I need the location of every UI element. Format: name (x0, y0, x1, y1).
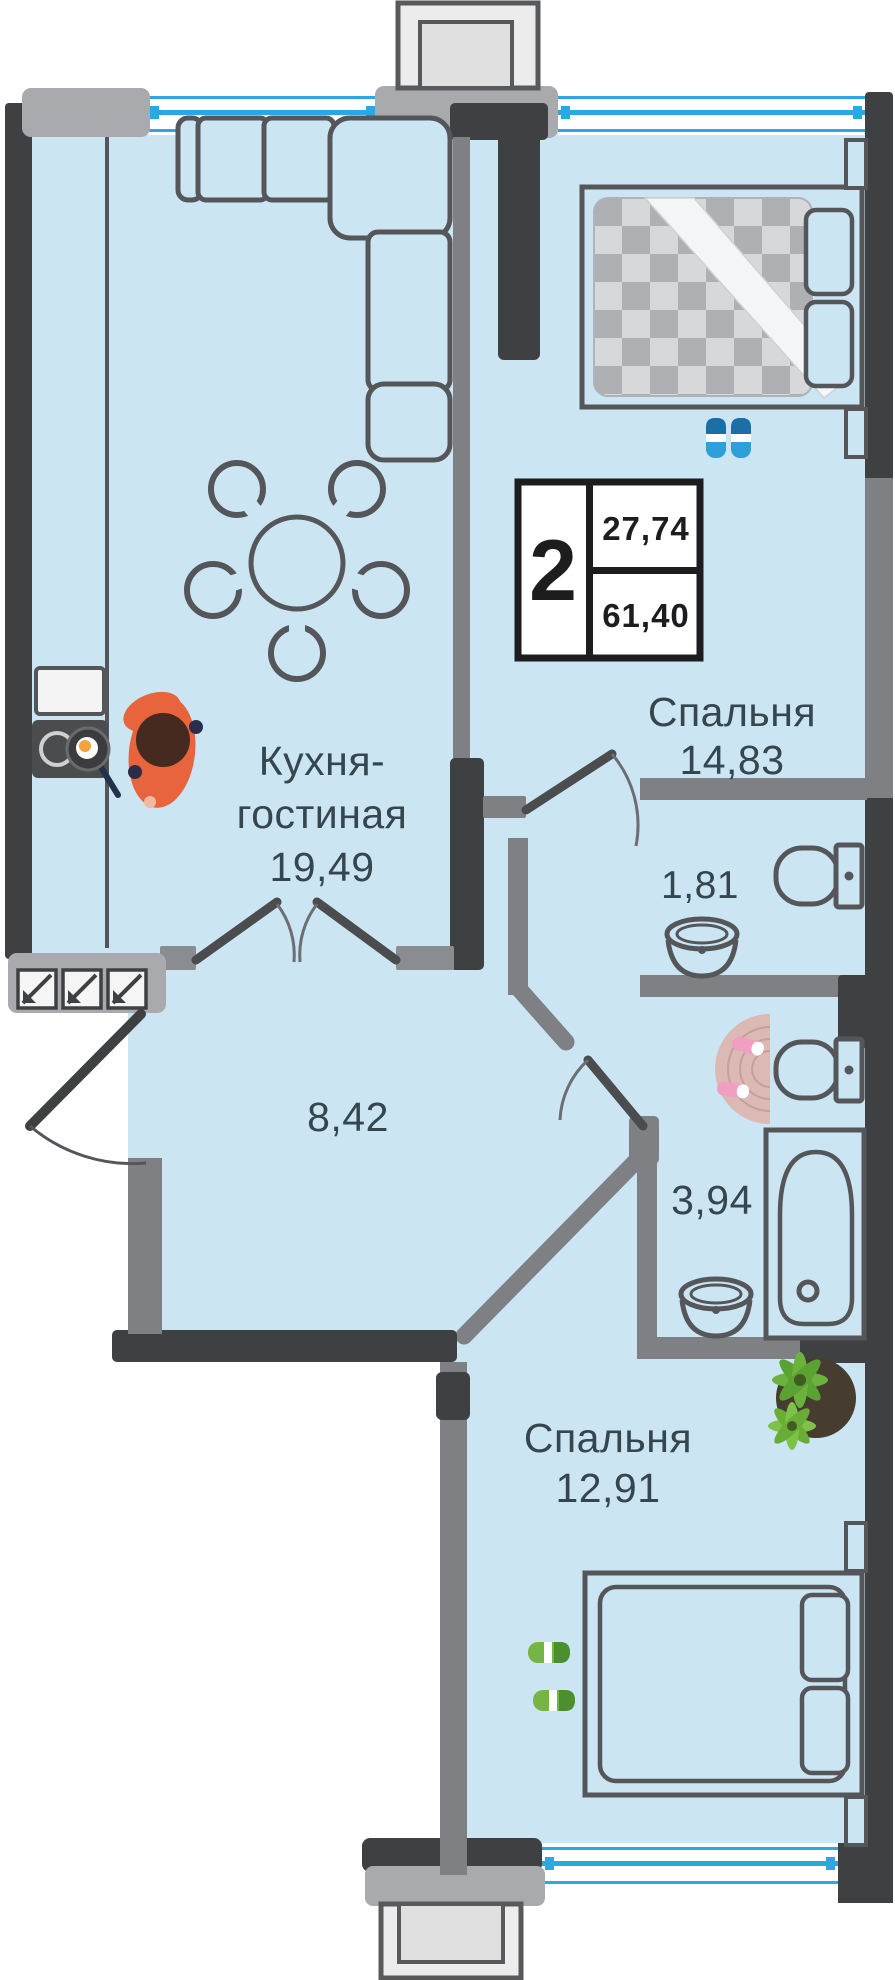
room-area-wc: 1,81 (661, 864, 739, 907)
wall-hallway-bottom (112, 1330, 457, 1362)
dining-table-icon (251, 517, 343, 609)
wall-wc-left (508, 838, 528, 995)
pillow-icon (806, 302, 852, 386)
window-tick-icon (545, 1857, 554, 1870)
wall-bedroom-bottom-left (440, 1362, 467, 1875)
wall-kitchen-bottom-right (396, 946, 454, 970)
room-area-kitchen: 19,49 (269, 844, 374, 890)
room-area-bedroom-bottom: 12,91 (555, 1465, 660, 1511)
washbasin-icon (667, 919, 737, 976)
window-tick-icon (826, 1857, 835, 1870)
nightstand-icon (846, 1797, 866, 1845)
info-rooms-count: 2 (529, 523, 577, 619)
room-area-bedroom-top: 14,83 (679, 737, 784, 783)
wall-left-outer (5, 103, 32, 959)
window-tick-icon (561, 106, 570, 119)
wall-bathroom-left (637, 1158, 657, 1348)
wall-shaft (498, 107, 540, 360)
window-tick-icon (150, 106, 159, 119)
wall-cap-dark (436, 1372, 470, 1420)
nightstand-icon (846, 140, 866, 188)
floor-plan: 2 27,74 61,40 Кухня- гостиная 19,49 Спал… (0, 0, 895, 1980)
info-area-top: 27,74 (602, 510, 690, 547)
room-label-bedroom-top: Спальня (648, 689, 816, 735)
floor-plan-svg: 2 27,74 61,40 Кухня- гостиная 19,49 Спал… (0, 0, 895, 1980)
bed-top-icon (582, 140, 866, 457)
pillow-icon (806, 210, 852, 294)
pillow-icon (802, 1688, 848, 1773)
nightstand-icon (846, 409, 866, 457)
pillar-top-left (22, 88, 150, 137)
wall-hallway-left (128, 1158, 162, 1334)
bed-bottom-icon (585, 1523, 866, 1845)
toilet-icon (776, 1039, 862, 1101)
window-band-bottom (542, 1843, 838, 1888)
room-label-kitchen-line1: Кухня- (259, 738, 385, 784)
wall-wc-bottom (640, 975, 867, 997)
sink-icon (36, 668, 104, 714)
pillow-icon (802, 1595, 848, 1680)
info-box: 2 27,74 61,40 (518, 482, 700, 658)
room-area-hallway: 8,42 (307, 1094, 389, 1140)
window-band-top-right (558, 92, 865, 135)
room-area-bathroom: 3,94 (671, 1177, 753, 1223)
wall-stub (483, 796, 526, 818)
room-label-kitchen-line2: гостиная (237, 791, 408, 837)
room-label-bedroom-bottom: Спальня (524, 1415, 692, 1461)
window-tick-icon (853, 106, 862, 119)
wall-corner-bottom-right (838, 1843, 893, 1903)
bathtub-icon (766, 1130, 864, 1338)
info-area-bottom: 61,40 (602, 597, 690, 634)
toilet-icon (776, 845, 862, 907)
washbasin-icon (681, 1279, 751, 1336)
wall-column-dark (450, 758, 484, 970)
wall-right-inner-segment (865, 478, 893, 798)
entry-hatch-icon (18, 970, 146, 1008)
nightstand-icon (846, 1523, 866, 1571)
wall-kitchen-bedroom (453, 137, 470, 762)
